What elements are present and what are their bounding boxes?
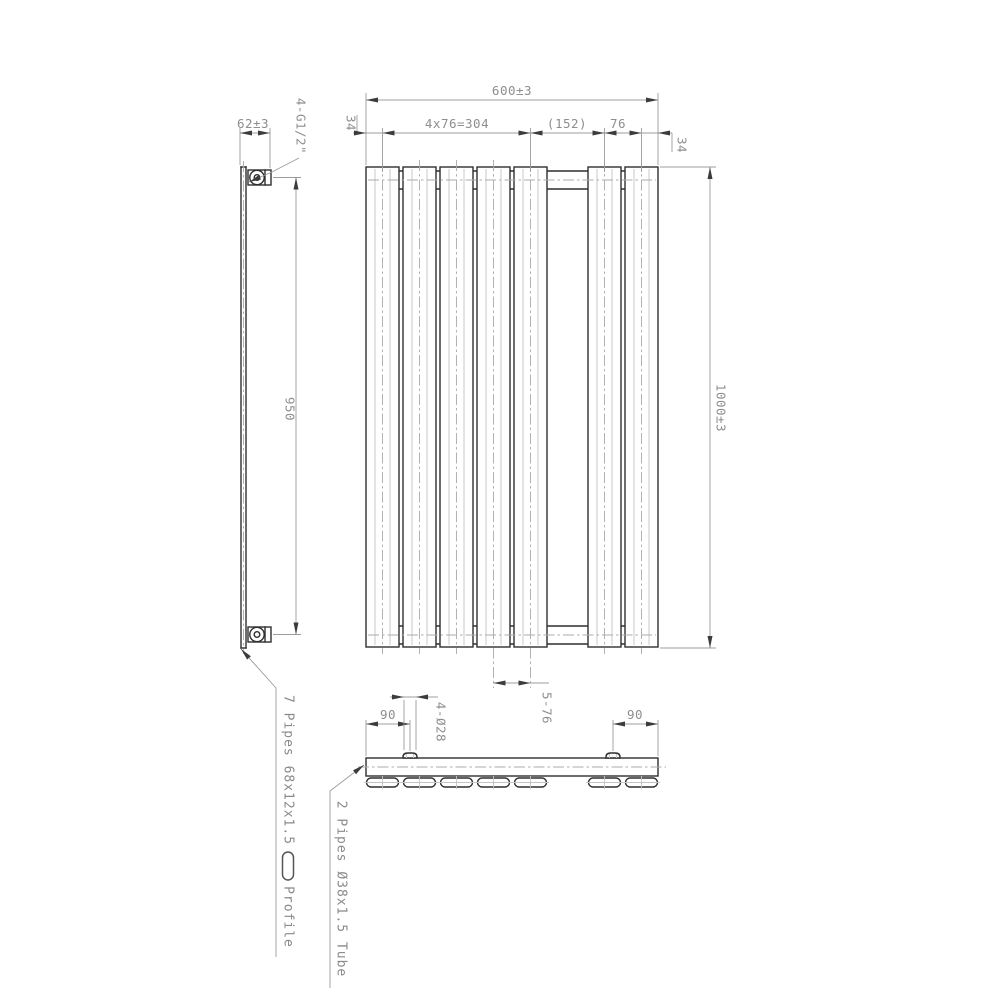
connection-thread-label: 4-G1/2": [294, 98, 309, 154]
dim-edge-offset-left-label: 34: [344, 115, 359, 131]
dim-side-depth-label: 62±3: [237, 116, 269, 131]
panel-pipes-note: 7 Pipes 68x12x1.5: [281, 695, 296, 845]
panel-profile-callout: 7 Pipes 68x12x1.5 Profile: [241, 649, 296, 957]
pipe-profile: [401, 776, 438, 789]
dim-panel-pitch-group-label: 4x76=304: [425, 116, 489, 131]
pipe-profile: [586, 776, 623, 789]
connection-boss-right: [606, 753, 620, 758]
dim-overall-height-label: 1000±3: [714, 384, 729, 432]
tube-pipes-note: 2 Pipes Ø38x1.5 Tube: [334, 801, 349, 978]
dim-side-depth: 62±3: [237, 116, 270, 168]
connection-boss-left: [403, 753, 417, 758]
pipe-profiles: [364, 776, 660, 789]
profile-label: Profile: [281, 886, 296, 948]
profile-oval-icon: [283, 852, 294, 880]
dim-boss-offset-left: 90: [366, 707, 410, 756]
dim-boss-offset-right-label: 90: [627, 707, 643, 722]
dim-boss-diameter-label: 4-Ø28: [434, 702, 449, 742]
dim-pipe-centers: 950: [273, 178, 301, 635]
dim-boss-offset-left-label: 90: [380, 707, 396, 722]
front-view: 600±3 34 4x76=304 (152) 76 34: [344, 83, 729, 724]
dim-bottom-pitch: 5-76: [494, 683, 555, 724]
dim-boss-offset-right: 90: [613, 707, 658, 756]
dim-edge-offset-right-label: 34: [675, 137, 690, 153]
dim-overall-width-label: 600±3: [492, 83, 532, 98]
dim-panel-pitch-label: 76: [610, 116, 626, 131]
pipe-profile: [512, 776, 549, 789]
pipe-profile: [623, 776, 660, 789]
pipe-profile: [475, 776, 512, 789]
dim-overall-height: 1000±3: [660, 167, 729, 648]
dim-boss-diameter: 4-Ø28: [390, 697, 449, 750]
connection-fitting-bottom: [248, 627, 271, 642]
radiator-drawing: 62±3 4-G1/2" 950 7 Pipes 68x12x1.5 Profi…: [0, 0, 1000, 1000]
pipe-profile: [438, 776, 475, 789]
dim-bottom-pitch-label: 5-76: [540, 692, 555, 724]
dim-center-gap-label: (152): [547, 116, 587, 131]
front-panels: [366, 160, 658, 688]
pipe-profile: [364, 776, 401, 789]
bottom-view: 90 90 4-Ø28 2 Pipes Ø38x1.5 Tube: [330, 697, 666, 988]
dim-pipe-centers-label: 950: [283, 397, 298, 421]
dim-chain-row: 34 4x76=304 (152) 76 34: [344, 115, 690, 172]
side-view: 62±3 4-G1/2" 950 7 Pipes 68x12x1.5 Profi…: [237, 98, 309, 957]
side-panel: [241, 161, 246, 654]
technical-drawing-canvas: 62±3 4-G1/2" 950 7 Pipes 68x12x1.5 Profi…: [0, 0, 1000, 1000]
tube-callout: 2 Pipes Ø38x1.5 Tube: [330, 765, 364, 988]
